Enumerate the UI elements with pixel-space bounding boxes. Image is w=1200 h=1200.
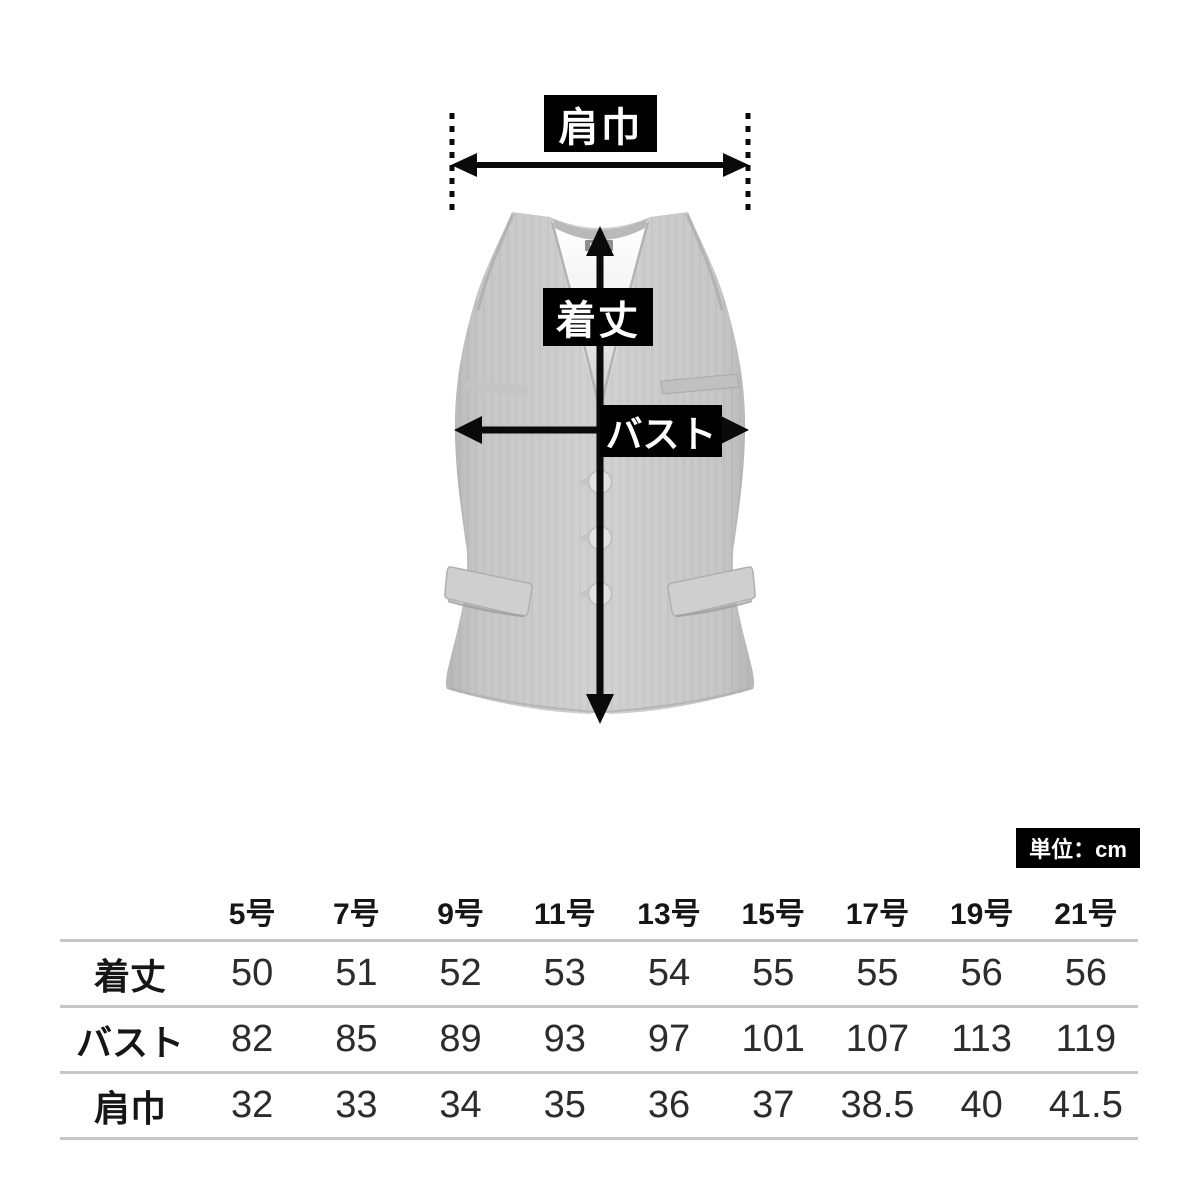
unit-badge: 単位：cm — [1016, 828, 1140, 868]
size-cell: 41.5 — [1034, 1073, 1138, 1139]
size-column-header: 19号 — [930, 882, 1034, 941]
size-cell: 38.5 — [825, 1073, 929, 1139]
size-cell: 35 — [513, 1073, 617, 1139]
size-cell: 36 — [617, 1073, 721, 1139]
size-cell: 82 — [200, 1007, 304, 1073]
size-column-header: 5号 — [200, 882, 304, 941]
size-cell: 55 — [721, 941, 825, 1007]
size-cell: 56 — [930, 941, 1034, 1007]
size-cell: 40 — [930, 1073, 1034, 1139]
size-chart-page: 肩巾 着丈 バスト 単位：cm 5号 7号 9号 11号 13号 15号 17号 — [0, 0, 1200, 1200]
size-column-header: 17号 — [825, 882, 929, 941]
size-table-section: 5号 7号 9号 11号 13号 15号 17号 19号 21号 着丈 50 5… — [60, 882, 1138, 1140]
table-row-shoulder: 肩巾 32 33 34 35 36 37 38.5 40 41.5 — [60, 1073, 1138, 1139]
size-cell: 55 — [825, 941, 929, 1007]
shoulder-width-label: 肩巾 — [544, 95, 657, 152]
size-table: 5号 7号 9号 11号 13号 15号 17号 19号 21号 着丈 50 5… — [60, 882, 1138, 1140]
size-cell: 107 — [825, 1007, 929, 1073]
size-cell: 37 — [721, 1073, 825, 1139]
size-cell: 34 — [408, 1073, 512, 1139]
size-cell: 85 — [304, 1007, 408, 1073]
size-cell: 93 — [513, 1007, 617, 1073]
bust-label: バスト — [600, 405, 722, 457]
size-cell: 52 — [408, 941, 512, 1007]
size-cell: 97 — [617, 1007, 721, 1073]
size-column-header: 15号 — [721, 882, 825, 941]
table-row-length: 着丈 50 51 52 53 54 55 55 56 56 — [60, 941, 1138, 1007]
size-cell: 51 — [304, 941, 408, 1007]
row-label: 着丈 — [60, 941, 200, 1007]
size-cell: 33 — [304, 1073, 408, 1139]
table-row-bust: バスト 82 85 89 93 97 101 107 113 119 — [60, 1007, 1138, 1073]
size-cell: 53 — [513, 941, 617, 1007]
size-cell: 89 — [408, 1007, 512, 1073]
size-cell: 119 — [1034, 1007, 1138, 1073]
length-label: 着丈 — [543, 288, 653, 346]
size-column-header: 13号 — [617, 882, 721, 941]
row-label: バスト — [60, 1007, 200, 1073]
row-label: 肩巾 — [60, 1073, 200, 1139]
size-table-corner — [60, 882, 200, 941]
size-cell: 113 — [930, 1007, 1034, 1073]
size-cell: 54 — [617, 941, 721, 1007]
size-column-header: 9号 — [408, 882, 512, 941]
size-cell: 50 — [200, 941, 304, 1007]
size-table-header-row: 5号 7号 9号 11号 13号 15号 17号 19号 21号 — [60, 882, 1138, 941]
size-column-header: 21号 — [1034, 882, 1138, 941]
size-cell: 32 — [200, 1073, 304, 1139]
size-cell: 56 — [1034, 941, 1138, 1007]
size-column-header: 7号 — [304, 882, 408, 941]
size-cell: 101 — [721, 1007, 825, 1073]
size-column-header: 11号 — [513, 882, 617, 941]
